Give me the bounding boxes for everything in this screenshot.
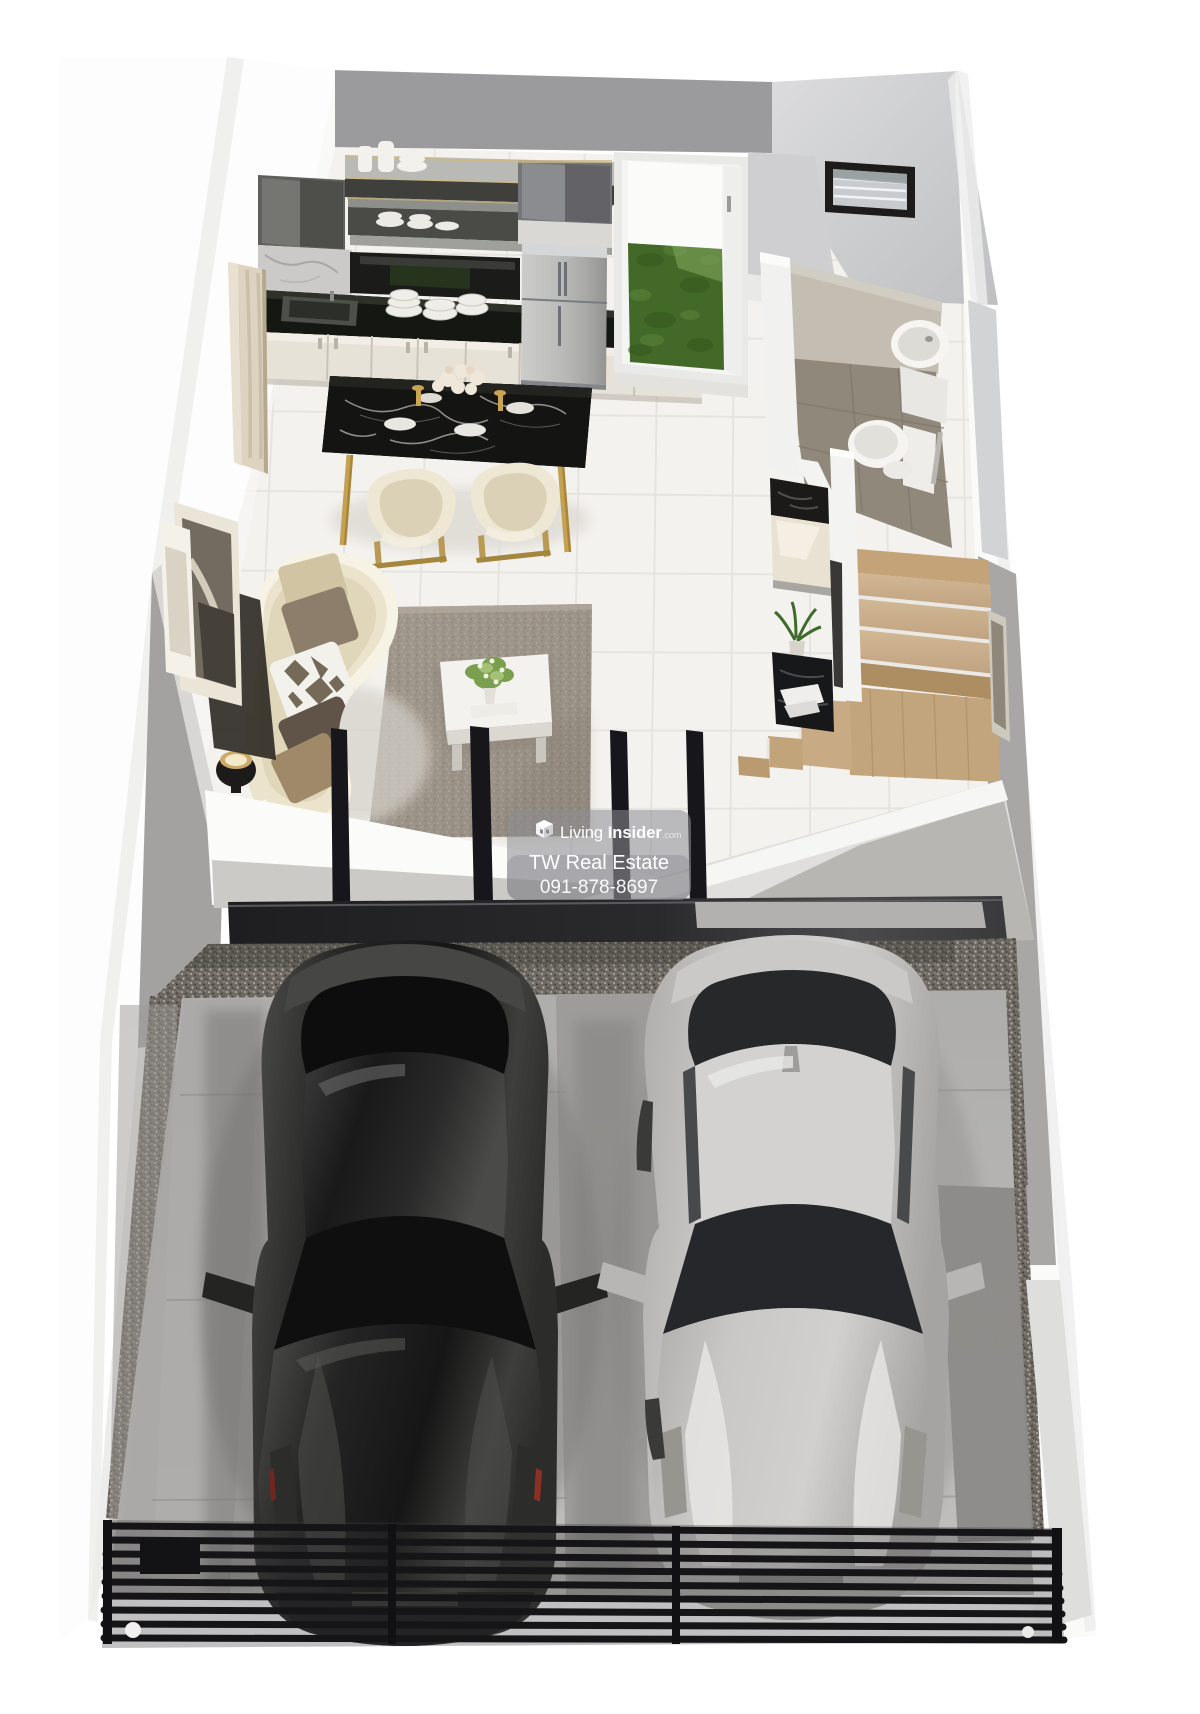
svg-text:TW Real Estate: TW Real Estate (529, 852, 669, 874)
svg-text:091-878-8697: 091-878-8697 (540, 877, 658, 898)
